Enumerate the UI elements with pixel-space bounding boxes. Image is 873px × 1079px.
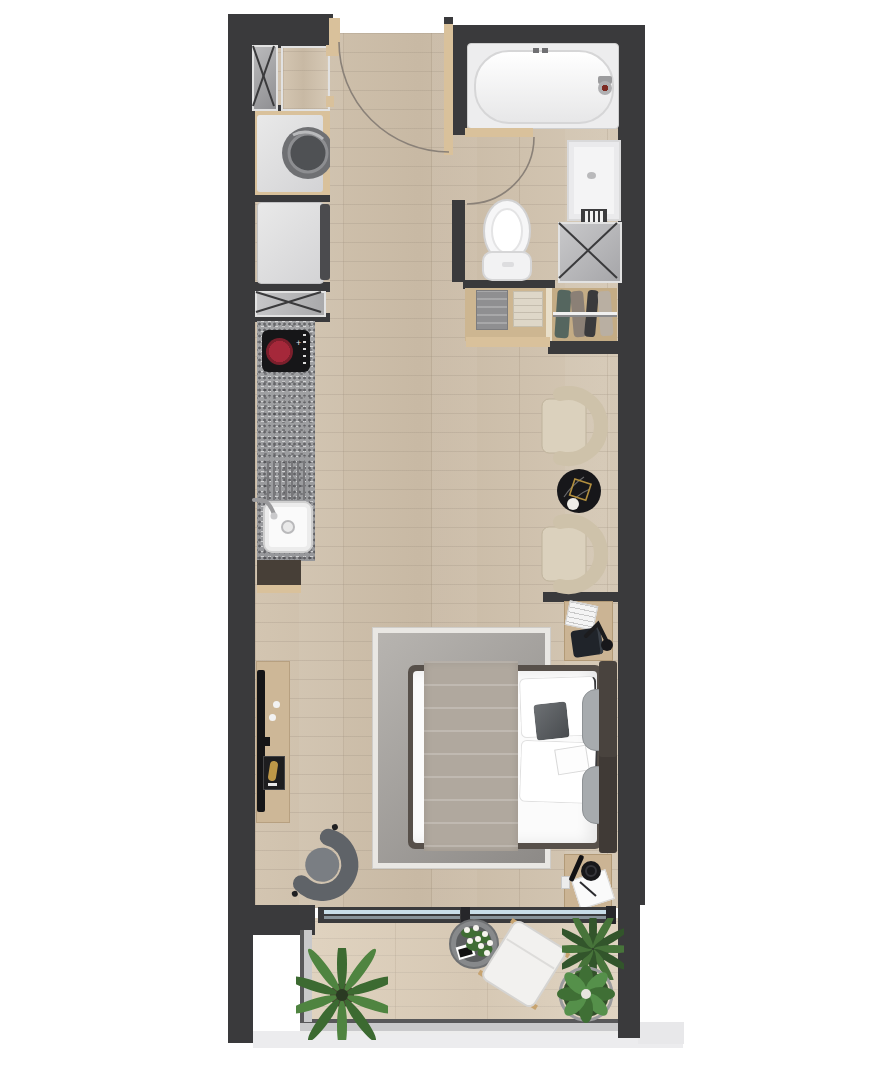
wall-closet-bottom (548, 341, 640, 354)
decor-knob-2 (269, 714, 276, 721)
round-coffee-table (554, 467, 604, 517)
vent-shaft-bathroom (558, 222, 622, 283)
bathtub (474, 50, 614, 124)
potted-plant-right-bottom (556, 964, 616, 1024)
toilet (478, 198, 538, 286)
shower-drain (587, 172, 596, 179)
throw-blanket (424, 661, 518, 851)
sliding-door-track-left (324, 916, 460, 919)
hob-controls (303, 334, 306, 366)
tv-mount (264, 737, 270, 746)
tub-control-1 (533, 48, 539, 53)
entry-door-leaf-cap (444, 17, 453, 24)
wall-bathroom-left-upper (452, 25, 467, 135)
art-label (268, 783, 277, 786)
tub-control-2 (542, 48, 548, 53)
decor-knob-1 (273, 701, 280, 708)
towel-stack-white (513, 291, 543, 327)
drop-shadow-corner (638, 1022, 684, 1044)
bathroom-door-leaf (465, 128, 533, 137)
hob-burner (266, 338, 293, 365)
wall-bathroom-left-lower (452, 200, 465, 282)
wall-right (618, 25, 645, 905)
vent-box-horizontal (255, 291, 326, 317)
vent-shaft-vertical (252, 45, 278, 111)
sliding-door-glass-right (470, 910, 606, 914)
sink-faucet (250, 492, 284, 526)
swivel-armchair (277, 821, 367, 909)
desk-items (566, 852, 612, 904)
closet-rod (553, 312, 617, 315)
entry-door-leaf (444, 17, 453, 155)
towel-stack-gray (476, 290, 508, 330)
wall-left-pier (228, 935, 253, 1043)
closet-threshold (466, 337, 550, 347)
hob-plus-mark: + (296, 340, 303, 347)
entry-alcove-niche (281, 46, 330, 111)
kitchen-base-cabinet (257, 560, 301, 587)
armchair-top (536, 386, 618, 468)
tub-faucet (598, 81, 612, 95)
headboard (599, 661, 617, 853)
niche-jamb-top (326, 45, 334, 56)
potted-plant-left (296, 948, 388, 1040)
cabinet-wood-edge (257, 585, 301, 593)
refrigerator-door-edge (320, 204, 330, 280)
floor-plan-canvas: + (0, 0, 873, 1079)
sliding-door-glass-left (324, 910, 460, 914)
refrigerator (257, 202, 324, 284)
armchair-bottom (536, 514, 618, 596)
decor-sphere (567, 498, 579, 510)
niche-jamb-bottom (326, 96, 334, 107)
washer-drum (255, 111, 330, 195)
wall-left (228, 14, 255, 910)
desk-lamp (580, 614, 614, 656)
accent-pillow (533, 701, 570, 740)
